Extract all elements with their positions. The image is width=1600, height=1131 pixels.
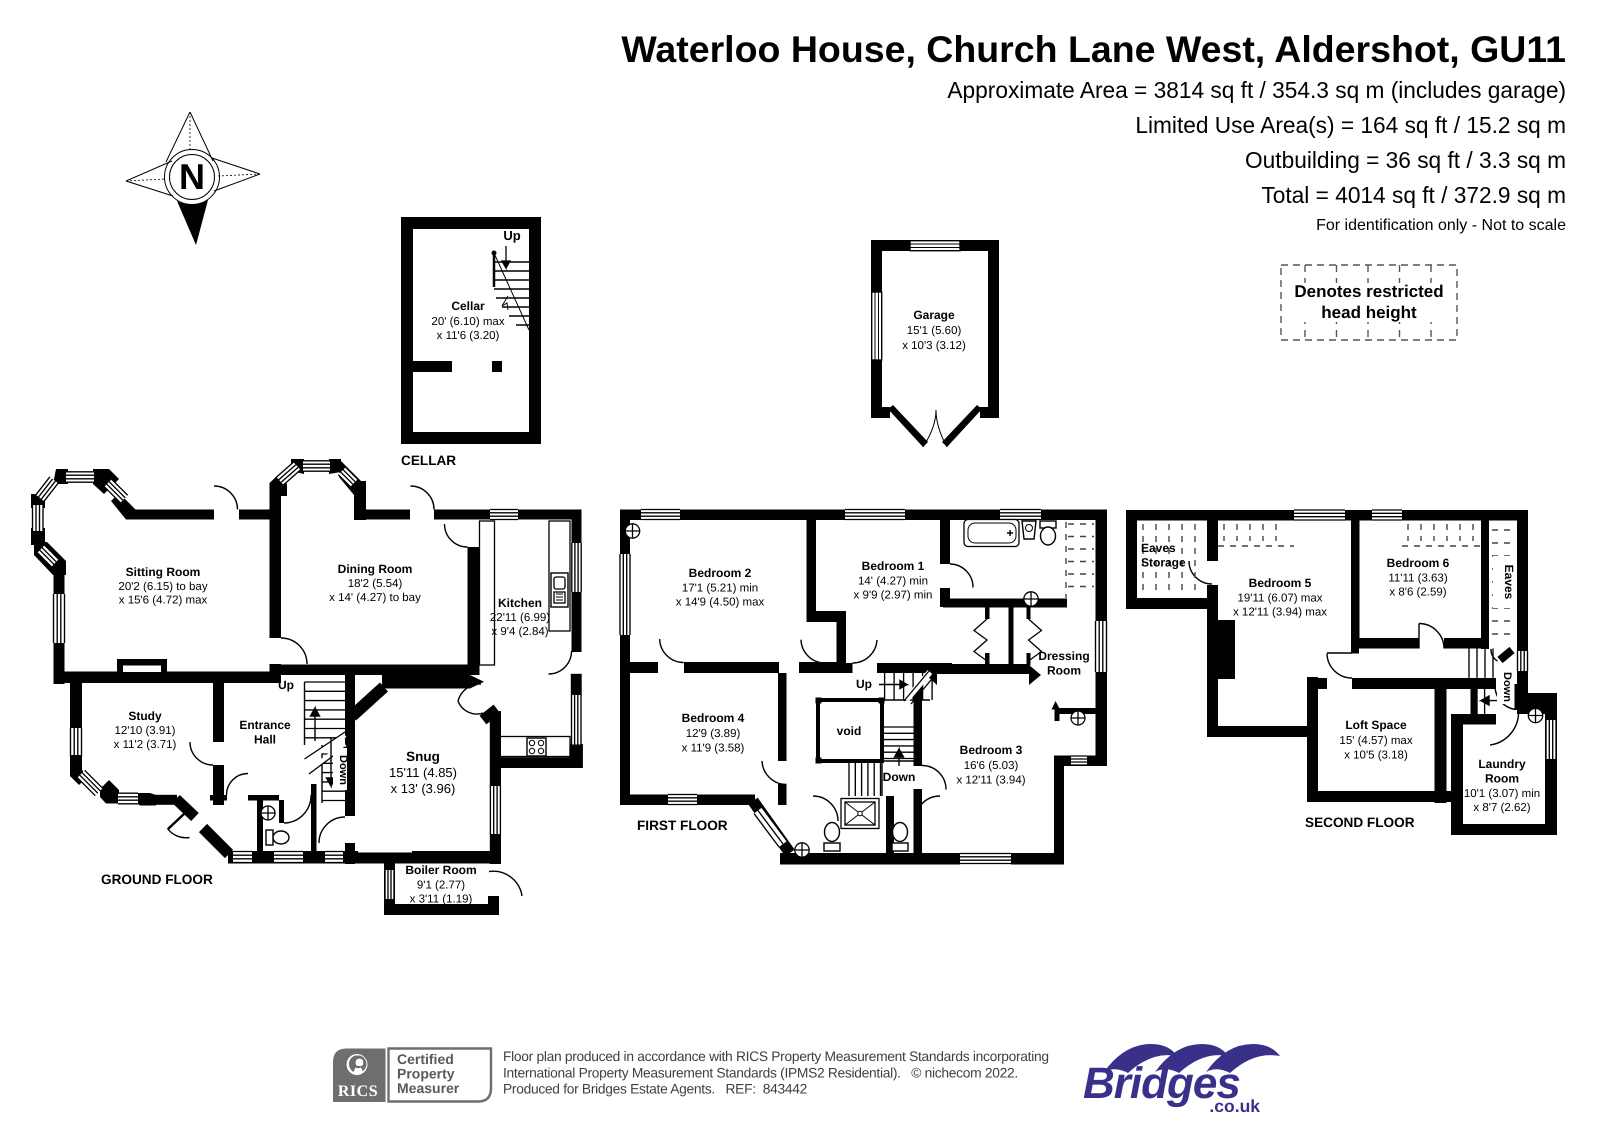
svg-text:x 8'6 (2.59): x 8'6 (2.59) <box>1389 587 1446 599</box>
svg-text:x 8'7 (2.62): x 8'7 (2.62) <box>1473 802 1530 814</box>
svg-text:x 14' (4.27) to bay: x 14' (4.27) to bay <box>329 592 421 604</box>
svg-text:x 14'9 (4.50) max: x 14'9 (4.50) max <box>676 597 765 609</box>
svg-text:Up: Up <box>856 677 872 691</box>
svg-text:Sitting Room: Sitting Room <box>126 565 201 579</box>
svg-text:.co.uk: .co.uk <box>1209 1096 1260 1116</box>
svg-text:14' (4.27) min: 14' (4.27) min <box>858 576 928 588</box>
svg-text:SECOND FLOOR: SECOND FLOOR <box>1305 815 1415 830</box>
svg-text:Room: Room <box>1485 772 1519 786</box>
svg-text:Down: Down <box>337 755 349 785</box>
svg-text:x 11'6 (3.20): x 11'6 (3.20) <box>437 330 500 342</box>
svg-text:void: void <box>837 724 862 738</box>
svg-text:x 15'6 (4.72) max: x 15'6 (4.72) max <box>119 595 208 607</box>
svg-text:15'11 (4.85): 15'11 (4.85) <box>389 765 457 780</box>
svg-text:16'6 (5.03): 16'6 (5.03) <box>964 760 1019 772</box>
svg-text:18'2 (5.54): 18'2 (5.54) <box>348 578 403 590</box>
svg-text:Down: Down <box>883 770 916 784</box>
svg-text:head height: head height <box>1321 303 1417 322</box>
svg-text:15'1 (5.60): 15'1 (5.60) <box>907 325 962 337</box>
svg-text:22'11 (6.99): 22'11 (6.99) <box>490 612 550 624</box>
svg-text:Up: Up <box>278 678 294 692</box>
svg-text:Bedroom 2: Bedroom 2 <box>689 566 752 580</box>
svg-text:Down: Down <box>1501 672 1513 702</box>
svg-text:Boiler Room: Boiler Room <box>405 863 476 877</box>
svg-text:N: N <box>179 156 205 197</box>
svg-text:x 9'9 (2.97) min: x 9'9 (2.97) min <box>854 590 933 602</box>
svg-text:Dining Room: Dining Room <box>338 562 413 576</box>
svg-text:FIRST FLOOR: FIRST FLOOR <box>637 818 728 833</box>
svg-text:Snug: Snug <box>406 749 440 764</box>
svg-text:11'11 (3.63): 11'11 (3.63) <box>1388 573 1447 585</box>
svg-text:Storage: Storage <box>1141 556 1186 570</box>
svg-text:Garage: Garage <box>913 308 955 322</box>
svg-text:12'9 (3.89): 12'9 (3.89) <box>686 728 741 740</box>
svg-text:Study: Study <box>128 709 162 723</box>
svg-text:x 10'3 (3.12): x 10'3 (3.12) <box>902 340 966 352</box>
svg-text:x 12'11 (3.94): x 12'11 (3.94) <box>956 775 1025 787</box>
svg-text:x 12'11 (3.94) max: x 12'11 (3.94) max <box>1233 607 1327 619</box>
svg-text:15' (4.57) max: 15' (4.57) max <box>1339 735 1412 747</box>
svg-text:x 13' (3.96): x 13' (3.96) <box>391 781 456 796</box>
svg-text:Cellar: Cellar <box>451 299 485 313</box>
svg-text:RICS: RICS <box>338 1083 378 1100</box>
svg-text:20'2 (6.15) to bay: 20'2 (6.15) to bay <box>118 581 207 593</box>
svg-text:Produced for Bridges Estate Ag: Produced for Bridges Estate Agents. REF:… <box>503 1082 807 1097</box>
svg-text:Eaves: Eaves <box>1502 565 1516 600</box>
svg-text:Bedroom 1: Bedroom 1 <box>862 559 925 573</box>
svg-text:x 10'5 (3.18): x 10'5 (3.18) <box>1344 750 1408 762</box>
svg-text:Hall: Hall <box>254 733 276 747</box>
svg-text:Entrance: Entrance <box>239 718 291 732</box>
svg-text:Bedroom 3: Bedroom 3 <box>960 743 1023 757</box>
svg-text:12'10 (3.91): 12'10 (3.91) <box>114 725 175 737</box>
svg-text:Eaves: Eaves <box>1141 541 1176 555</box>
svg-text:Denotes restricted: Denotes restricted <box>1294 282 1443 301</box>
svg-text:Bedroom 6: Bedroom 6 <box>1387 556 1450 570</box>
svg-text:GROUND FLOOR: GROUND FLOOR <box>101 872 213 887</box>
svg-text:9'1 (2.77): 9'1 (2.77) <box>417 880 465 892</box>
svg-text:Room: Room <box>1047 664 1081 678</box>
svg-text:Bedroom 4: Bedroom 4 <box>682 711 745 725</box>
svg-text:International Property Measure: International Property Measurement Stand… <box>503 1066 1018 1081</box>
svg-text:Bedroom 5: Bedroom 5 <box>1249 576 1312 590</box>
svg-text:Up: Up <box>503 228 520 243</box>
svg-text:x 11'9 (3.58): x 11'9 (3.58) <box>682 743 745 755</box>
svg-text:CELLAR: CELLAR <box>401 453 456 468</box>
svg-text:Measurer: Measurer <box>397 1080 460 1096</box>
svg-text:Floor plan produced in accorda: Floor plan produced in accordance with R… <box>503 1049 1049 1064</box>
svg-text:17'1 (5.21) min: 17'1 (5.21) min <box>682 583 758 595</box>
svg-text:x 11'2 (3.71): x 11'2 (3.71) <box>114 739 177 751</box>
svg-text:Laundry: Laundry <box>1478 757 1526 771</box>
svg-text:10'1 (3.07) min: 10'1 (3.07) min <box>1464 788 1540 800</box>
svg-text:Dressing: Dressing <box>1038 649 1089 663</box>
svg-text:Loft Space: Loft Space <box>1345 718 1407 732</box>
svg-text:20' (6.10) max: 20' (6.10) max <box>431 316 504 328</box>
svg-text:Kitchen: Kitchen <box>498 596 542 610</box>
svg-text:x 9'4 (2.84): x 9'4 (2.84) <box>491 626 548 638</box>
svg-text:19'11 (6.07) max: 19'11 (6.07) max <box>1237 593 1322 605</box>
svg-text:x 3'11 (1.19): x 3'11 (1.19) <box>410 894 473 906</box>
